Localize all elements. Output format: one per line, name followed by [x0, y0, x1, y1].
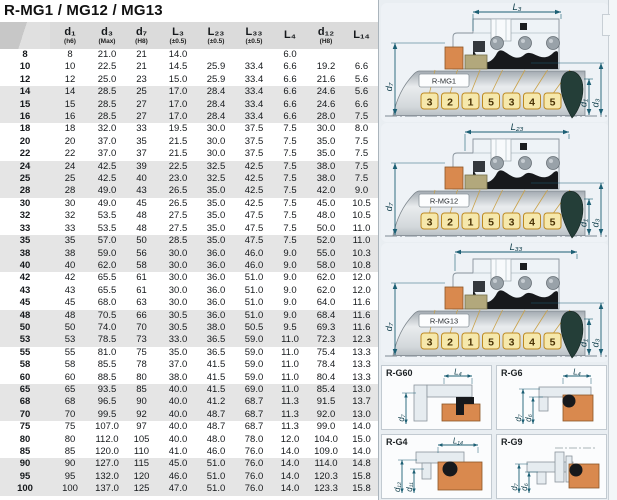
table-cell: 30.5	[159, 310, 197, 322]
table-row: 242442.53922.532.542.57.538.07.5	[0, 161, 378, 173]
item-number: 3	[427, 337, 433, 349]
item-number-tag: 3	[503, 333, 520, 349]
dim-label-top: L₁₄	[453, 437, 463, 446]
table-cell: 33.0	[159, 334, 197, 346]
item-number: 5	[488, 217, 494, 229]
table-cell: 68.0	[90, 297, 124, 309]
table-cell: 15.0	[345, 434, 378, 446]
table-cell: 7.5	[273, 173, 307, 185]
table-cell: 90	[124, 396, 159, 408]
table-cell: 25.0	[90, 74, 124, 86]
table-cell: 41.0	[159, 446, 197, 458]
table-cell: 42	[50, 272, 90, 284]
col-header-3: d₇(H8)	[124, 22, 159, 49]
item-number-tag: 5	[483, 93, 500, 109]
col-header-label: L₃₃	[235, 27, 273, 38]
table-cell: 65	[50, 384, 90, 396]
table-cell: 47.5	[235, 235, 273, 247]
table-cell: 22.5	[90, 61, 124, 73]
table-cell: 30.0	[159, 248, 197, 260]
table-cell	[345, 49, 378, 61]
table-cell: 42.5	[90, 173, 124, 185]
table-cell: 7.5	[273, 198, 307, 210]
table-row: 9595132.012046.051.076.014.0120.315.8	[0, 471, 378, 483]
table-cell: 7.5	[273, 161, 307, 173]
table-cell: 109.0	[307, 446, 345, 458]
detail-box-R-G4: R-G4L₁₄d₁₂d₁₁	[381, 434, 492, 499]
col-header-note: (±0.5)	[159, 38, 197, 45]
table-cell: 14.0	[273, 446, 307, 458]
table-cell: 36.0	[197, 272, 235, 284]
table-cell: 20	[50, 136, 90, 148]
table-cell: 17.0	[159, 86, 197, 98]
table-cell: 92	[124, 409, 159, 421]
table-cell: 28.4	[197, 86, 235, 98]
table-cell: 12	[0, 74, 50, 86]
table-cell: 47.0	[159, 483, 197, 495]
table-row: 505074.07030.538.050.59.569.311.6	[0, 322, 378, 334]
table-cell: 59.0	[90, 248, 124, 260]
table-cell: 7.5	[345, 148, 378, 160]
item-number-tag: 5	[544, 213, 561, 229]
table-cell: 76.0	[235, 458, 273, 470]
table-cell: 33	[124, 123, 159, 135]
table-cell: 16	[50, 111, 90, 123]
col-header-label: L₂₃	[197, 27, 235, 38]
dim-label-d7: d₇	[384, 202, 395, 211]
table-cell: 30.0	[307, 123, 345, 135]
table-cell: 17.0	[159, 111, 197, 123]
dim-label-d3: d₃	[591, 338, 602, 347]
table-cell: 22	[50, 148, 90, 160]
item-number-tag: 5	[544, 333, 561, 349]
table-cell: 37.5	[235, 123, 273, 135]
item-number: 4	[529, 337, 535, 349]
col-header-2: d₃(Max)	[90, 22, 124, 49]
table-cell: 36.0	[197, 260, 235, 272]
table-cell: 19.2	[307, 61, 345, 73]
table-cell: 46.0	[159, 471, 197, 483]
table-row: 100100137.012547.051.076.014.0123.315.8	[0, 483, 378, 495]
detail-label: R-G9	[501, 437, 523, 447]
col-header-label: d₁	[50, 27, 90, 38]
table-cell: 30.5	[159, 322, 197, 334]
table-cell: 75.4	[307, 347, 345, 359]
table-cell: 11.0	[273, 384, 307, 396]
table-cell: 61	[124, 272, 159, 284]
table-cell: 30.0	[159, 272, 197, 284]
table-cell: 59.0	[235, 334, 273, 346]
table-cell: 13.3	[345, 347, 378, 359]
table-cell: 10.3	[345, 248, 378, 260]
dim-label: d₇	[397, 413, 406, 421]
item-number-tag: 2	[442, 213, 459, 229]
table-row: 484870.56630.536.051.09.068.411.6	[0, 310, 378, 322]
table-row: 707099.59240.048.768.711.392.013.0	[0, 409, 378, 421]
table-cell: 27	[124, 99, 159, 111]
table-cell: 32	[0, 210, 50, 222]
table-cell: 40	[0, 260, 50, 272]
table-cell: 37.0	[159, 359, 197, 371]
table-cell: 61	[124, 285, 159, 297]
dim-label-length: L₂₃	[511, 123, 524, 133]
table-cell: 107.0	[90, 421, 124, 433]
table-cell: 88.5	[90, 372, 124, 384]
table-cell: 40.0	[159, 434, 197, 446]
item-number-tag: 1	[462, 213, 479, 229]
dim-label-d7: d₇	[384, 82, 395, 91]
table-cell: 9.0	[273, 260, 307, 272]
seat-ring	[445, 47, 463, 69]
table-cell: 24.6	[307, 99, 345, 111]
item-number: 3	[427, 217, 433, 229]
table-cell: 41.2	[197, 396, 235, 408]
table-cell: 10	[50, 61, 90, 73]
table-header: d₁(h6)d₃(Max)d₇(H8)L₃(±0.5)L₂₃(±0.5)L₃₃(…	[0, 22, 378, 49]
table-row: 7575107.09740.048.768.711.399.014.0	[0, 421, 378, 433]
table-cell: 68	[50, 396, 90, 408]
table-cell: 35	[124, 136, 159, 148]
table-cell: 30.0	[159, 297, 197, 309]
table-cell: 20	[0, 136, 50, 148]
dim-label-top: L₄	[573, 368, 581, 377]
table-cell: 72.3	[307, 334, 345, 346]
table-cell: 45	[124, 198, 159, 210]
item-number-tag: 1	[462, 333, 479, 349]
table-cell: 70	[50, 409, 90, 421]
table-row: 424265.56130.036.051.09.062.012.0	[0, 272, 378, 284]
col-header-note: (h6)	[50, 38, 90, 45]
col-header-0	[0, 22, 50, 49]
table-cell: 60	[50, 372, 90, 384]
table-cell: 36.0	[197, 248, 235, 260]
table-cell: 37.0	[90, 148, 124, 160]
table-cell: 35.0	[307, 148, 345, 160]
table-cell: 14.8	[345, 458, 378, 470]
table-cell: 60	[0, 372, 50, 384]
table-cell: 21	[124, 61, 159, 73]
table-cell: 110	[124, 446, 159, 458]
table-cell: 48	[0, 310, 50, 322]
table-cell: 7.5	[273, 136, 307, 148]
table-cell: 42.5	[235, 161, 273, 173]
dim-label-d3: d₃	[591, 218, 602, 227]
item-number: 1	[468, 217, 474, 229]
table-cell: 35	[50, 235, 90, 247]
table-cell: 5.6	[345, 86, 378, 98]
table-cell: 55	[50, 347, 90, 359]
table-cell: 43	[50, 285, 90, 297]
table-cell: 70	[0, 409, 50, 421]
table-cell: 10.8	[345, 260, 378, 272]
detail-box-R-G6: R-G6L₄d₇d₆	[496, 365, 607, 430]
dim-label-d1: d₁	[579, 219, 590, 227]
table-cell: 33.4	[235, 61, 273, 73]
seal-section-diagram: R-MG13 3215345 L₃₃ d₇ d₁ d₃	[381, 243, 609, 362]
table-cell: 58	[50, 359, 90, 371]
item-number: 4	[529, 217, 535, 229]
item-number: 5	[488, 337, 494, 349]
table-cell: 91.5	[307, 396, 345, 408]
item-number: 1	[468, 97, 474, 109]
table-cell: 6.6	[273, 111, 307, 123]
page-edge	[608, 0, 617, 500]
table-cell: 46.0	[235, 248, 273, 260]
table-cell: 27.5	[159, 210, 197, 222]
table-cell: 65	[0, 384, 50, 396]
detail-box-R-G9: R-G9d₇d₆	[496, 434, 607, 499]
table-cell: 35.0	[197, 185, 235, 197]
dim-label-top: L₄	[454, 368, 462, 377]
table-cell: 30	[0, 198, 50, 210]
table-cell: 45	[50, 297, 90, 309]
table-cell: 18	[50, 123, 90, 135]
table-cell: 33	[50, 223, 90, 235]
table-cell: 24	[50, 161, 90, 173]
table-row: 454568.06330.036.051.09.064.011.6	[0, 297, 378, 309]
col-header-9: L₁₄	[345, 22, 378, 49]
table-cell: 73	[124, 334, 159, 346]
dim-label: d₆	[524, 413, 533, 421]
table-cell: 11.0	[273, 347, 307, 359]
table-row: 585885.57837.041.559.011.078.413.3	[0, 359, 378, 371]
item-number: 4	[529, 97, 535, 109]
table-cell: 50	[0, 322, 50, 334]
table-row: 181832.03319.530.037.57.530.08.0	[0, 123, 378, 135]
table-cell: 11.0	[273, 372, 307, 384]
table-cell: 11.3	[273, 396, 307, 408]
table-cell: 14.0	[345, 446, 378, 458]
table-cell: 42.5	[235, 185, 273, 197]
table-cell: 7.5	[273, 223, 307, 235]
table-cell: 15	[0, 99, 50, 111]
table-cell: 68.7	[235, 396, 273, 408]
table-row: 222237.03721.530.037.57.535.07.5	[0, 148, 378, 160]
table-cell: 6.6	[345, 61, 378, 73]
model-label: R-MG1	[432, 77, 456, 86]
table-cell: 48.0	[197, 434, 235, 446]
table-cell: 7.5	[345, 173, 378, 185]
table-cell: 13.3	[345, 359, 378, 371]
table-cell: 24	[0, 161, 50, 173]
table-cell: 80	[124, 372, 159, 384]
table-cell: 40	[50, 260, 90, 272]
table-cell: 69.0	[235, 384, 273, 396]
table-row: 606088.58038.041.559.011.080.413.3	[0, 372, 378, 384]
table-cell: 14.0	[273, 458, 307, 470]
item-number: 3	[509, 217, 515, 229]
table-cell: 21.5	[159, 136, 197, 148]
table-cell: 6.0	[273, 49, 307, 61]
diagram-R-MG1: R-MG1 3215345 L₃ d₇ d₁ d₃	[381, 3, 609, 122]
table-cell: 62.0	[307, 272, 345, 284]
table-cell: 30.0	[197, 148, 235, 160]
table-cell: 12.0	[273, 434, 307, 446]
item-number: 3	[509, 337, 515, 349]
table-cell: 99.0	[307, 421, 345, 433]
table-cell: 123.3	[307, 483, 345, 495]
detail-diagrams-grid: R-G60L₄d₇R-G6L₄d₇d₆R-G4L₁₄d₁₂d₁₁R-G9d₇d₆	[379, 363, 617, 499]
table-cell: 28.5	[90, 111, 124, 123]
table-cell: 13.3	[345, 372, 378, 384]
table-cell: 35.0	[197, 235, 235, 247]
table-cell: 112.0	[90, 434, 124, 446]
dimensions-table: d₁(h6)d₃(Max)d₇(H8)L₃(±0.5)L₂₃(±0.5)L₃₃(…	[0, 22, 378, 496]
table-cell: 59.0	[235, 359, 273, 371]
table-cell: 18	[0, 123, 50, 135]
table-cell: 65.5	[90, 272, 124, 284]
col-header-label: d₃	[90, 27, 124, 38]
table-cell: 33.4	[235, 99, 273, 111]
item-number: 5	[488, 97, 494, 109]
table-cell: 11.0	[273, 334, 307, 346]
table-cell: 7.5	[345, 111, 378, 123]
table-cell: 47.5	[235, 223, 273, 235]
table-row: 434365.56130.036.051.09.062.012.0	[0, 285, 378, 297]
item-number-tag: 5	[483, 213, 500, 229]
item-number-tag: 5	[483, 333, 500, 349]
col-header-label: L₁₄	[345, 30, 378, 41]
table-cell	[307, 49, 345, 61]
table-cell: 9.0	[273, 310, 307, 322]
table-cell: 64.0	[307, 297, 345, 309]
table-cell: 33.4	[235, 86, 273, 98]
table-cell: 104.0	[307, 434, 345, 446]
item-number-tag: 4	[524, 93, 541, 109]
table-cell: 36.0	[197, 285, 235, 297]
col-header-label: L₃	[159, 27, 197, 38]
table-cell: 41.5	[197, 359, 235, 371]
dim-label-d1: d₁	[579, 99, 590, 107]
table-cell: 21	[124, 49, 159, 61]
table-cell: 68.7	[235, 421, 273, 433]
table-cell: 59.0	[235, 372, 273, 384]
table-cell: 66	[124, 310, 159, 322]
table-cell: 15.8	[345, 471, 378, 483]
table-cell: 76.0	[235, 471, 273, 483]
dim-label: d₁₂	[393, 482, 402, 492]
table-cell: 120	[124, 471, 159, 483]
dim-label-length: L₃	[512, 3, 521, 13]
table-cell: 11.3	[273, 421, 307, 433]
table-cell: 10.5	[345, 210, 378, 222]
table-cell: 11.6	[345, 297, 378, 309]
table-cell: 45.0	[159, 458, 197, 470]
table-cell: 13.7	[345, 396, 378, 408]
table-cell: 21.5	[159, 148, 197, 160]
table-cell: 40	[124, 173, 159, 185]
table-cell: 11.0	[345, 235, 378, 247]
table-row: 9090127.011545.051.076.014.0114.014.8	[0, 458, 378, 470]
table-cell: 37	[124, 148, 159, 160]
table-cell: 127.0	[90, 458, 124, 470]
table-cell: 15.0	[159, 74, 197, 86]
item-number-tag: 3	[503, 93, 520, 109]
table-cell: 90	[0, 458, 50, 470]
table-row: 656593.58540.041.569.011.085.413.0	[0, 384, 378, 396]
table-cell: 14.0	[159, 49, 197, 61]
table-cell: 35.0	[159, 347, 197, 359]
table-row: 8821.02114.06.0	[0, 49, 378, 61]
diagram-panel: R-MG1 3215345 L₃ d₇ d₁ d₃ R-MG12 3215345…	[378, 0, 617, 500]
table-cell: 42.5	[90, 161, 124, 173]
table-cell: 42	[0, 272, 50, 284]
col-header-note: (H8)	[307, 38, 345, 45]
item-number-tag: 4	[524, 213, 541, 229]
seal-face	[473, 161, 485, 172]
table-cell: 120.0	[90, 446, 124, 458]
detail-box-R-G60: R-G60L₄d₇	[381, 365, 492, 430]
item-number-tag: 1	[462, 93, 479, 109]
table-row: 151528.52717.028.433.46.624.66.6	[0, 99, 378, 111]
table-row: 121225.02315.025.933.46.621.65.6	[0, 74, 378, 86]
table-cell: 11.0	[273, 359, 307, 371]
item-number: 3	[427, 97, 433, 109]
table-cell: 30	[50, 198, 90, 210]
table-cell: 21.6	[307, 74, 345, 86]
table-cell: 17.0	[159, 99, 197, 111]
table-cell: 32.0	[90, 123, 124, 135]
dim-label-d1: d₁	[579, 339, 590, 347]
table-cell: 15.8	[345, 483, 378, 495]
detail-label: R-G6	[501, 368, 523, 378]
table-cell: 22	[0, 148, 50, 160]
table-cell: 11.3	[273, 409, 307, 421]
item-number: 1	[468, 337, 474, 349]
table-cell: 58	[0, 359, 50, 371]
table-cell: 59.0	[235, 347, 273, 359]
table-row: 353557.05028.535.047.57.552.011.0	[0, 235, 378, 247]
table-cell: 38.0	[159, 372, 197, 384]
table-cell: 7.5	[345, 136, 378, 148]
table-cell: 10.5	[345, 198, 378, 210]
table-cell: 65.5	[90, 285, 124, 297]
secondary-ring	[465, 55, 487, 69]
seal-face	[473, 41, 485, 52]
table-cell: 33.4	[235, 74, 273, 86]
table-row: 282849.04326.535.042.57.542.09.0	[0, 185, 378, 197]
table-cell: 50.5	[235, 322, 273, 334]
table-cell: 11.6	[345, 310, 378, 322]
item-number-tag: 2	[442, 93, 459, 109]
table-cell: 7.5	[273, 235, 307, 247]
table-cell: 48.0	[307, 210, 345, 222]
table-cell: 40.0	[159, 384, 197, 396]
table-cell: 78	[124, 359, 159, 371]
table-cell: 33.4	[235, 111, 273, 123]
table-cell: 51.0	[235, 285, 273, 297]
table-cell: 37.5	[235, 136, 273, 148]
table-row: 303049.04526.535.042.57.545.010.5	[0, 198, 378, 210]
col-header-5: L₂₃(±0.5)	[197, 22, 235, 49]
table-cell: 35	[0, 235, 50, 247]
catalog-page: R-MG1 / MG12 / MG13 d₁(h6)d₃(Max)d₇(H8)L…	[0, 0, 617, 500]
table-cell: 76.0	[235, 446, 273, 458]
item-number-tag: 3	[503, 213, 520, 229]
table-cell: 25	[50, 173, 90, 185]
table-cell: 30.0	[197, 123, 235, 135]
table-cell: 37.5	[235, 148, 273, 160]
table-cell: 43	[0, 285, 50, 297]
table-cell: 55.0	[307, 248, 345, 260]
item-number: 3	[509, 97, 515, 109]
col-header-label: d₇	[124, 27, 159, 38]
table-cell: 26.5	[159, 198, 197, 210]
table-cell: 22.5	[159, 161, 197, 173]
table-cell: 9.0	[273, 248, 307, 260]
seat-ring	[445, 287, 463, 309]
table-cell: 25	[0, 173, 50, 185]
